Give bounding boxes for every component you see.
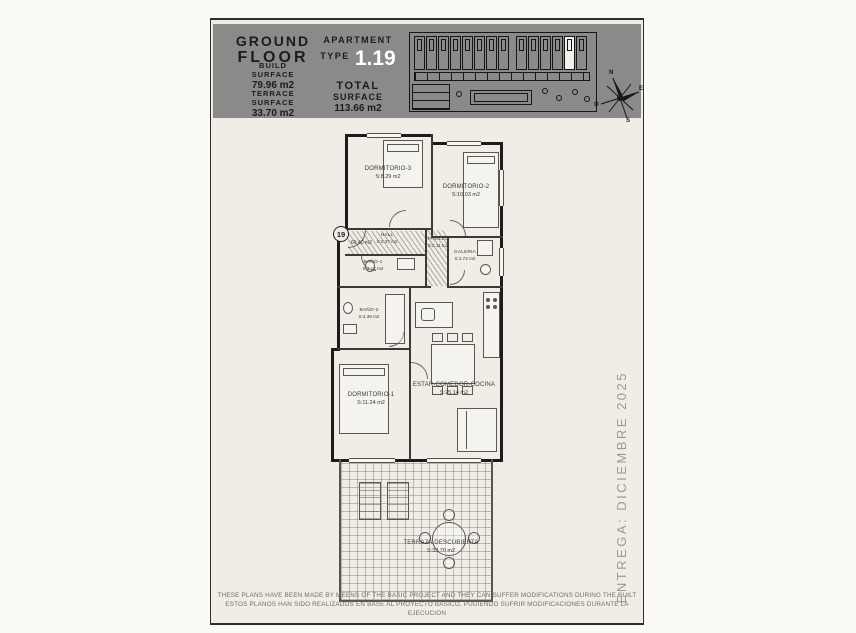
disclaimer-line-es: ESTOS PLANOS HAN SIDO REALIZADOS EN BASE… <box>211 600 643 618</box>
delivery-note: ENTREGA: DICIEMBRE 2025 <box>614 371 629 603</box>
compass-south-label: S <box>626 118 630 124</box>
stove-burner <box>493 305 497 309</box>
total-surface-value: 113.66 m2 <box>313 103 403 114</box>
window <box>447 141 481 146</box>
tree-icon <box>572 89 578 95</box>
terrace-wall <box>491 459 493 602</box>
wall-segment <box>431 134 433 238</box>
room-label-bano-1: BAÑO-1S:4.12 m2 <box>351 260 395 272</box>
dining-chair <box>462 333 473 342</box>
room-label-dormitorio-1: DORMITORIO-1S:11.24 m2 <box>339 392 403 407</box>
dining-chair <box>447 333 458 342</box>
site-plan-annex-block <box>412 84 450 110</box>
sink-bano-1 <box>397 258 415 270</box>
stove-burner <box>486 298 490 302</box>
door-dormitorio-1 <box>411 362 428 379</box>
apartment-number: 1.19 <box>355 47 396 71</box>
total-surface-label1: TOTAL <box>313 80 403 92</box>
site-plan-highlighted-unit <box>564 36 575 70</box>
terrace-surface-block: TERRACE SURFACE 33.70 m2 <box>233 90 313 119</box>
apartment-type-block: APARTMENT TYPE 1.19 <box>313 35 403 71</box>
compass-north-label: N <box>609 70 613 76</box>
door-dormitorio-3 <box>389 210 406 227</box>
tree-icon <box>456 91 462 97</box>
apartment-label: APARTMENT <box>313 35 403 45</box>
wall-segment <box>345 134 348 230</box>
wall-segment <box>337 228 340 350</box>
apartment-type-label: TYPE <box>320 51 350 61</box>
boiler-galeria <box>480 264 491 275</box>
stove-burner <box>493 298 497 302</box>
dining-table <box>431 344 475 384</box>
wall-segment <box>337 286 431 288</box>
compass-west-label: O <box>594 102 599 108</box>
total-surface-block: TOTAL SURFACE 113.66 m2 <box>313 80 403 114</box>
build-surface-block: BUILD SURFACE 79.96 m2 <box>233 62 313 91</box>
sink-bano-2 <box>343 324 357 334</box>
site-plan-units-left <box>414 36 509 70</box>
dining-chair <box>432 333 443 342</box>
site-plan-units-right <box>516 36 587 70</box>
wall-segment <box>345 254 427 256</box>
wall-segment <box>447 286 503 288</box>
room-label-bano-2: BAÑO-2S:4.38 m2 <box>345 308 393 320</box>
room-label-pasillo: PASILLOS:2.11 m2 <box>423 237 453 249</box>
room-label-dormitorio-3: DORMITORIO-3S:8.29 m2 <box>357 166 419 181</box>
compass-east-label: E <box>639 86 643 92</box>
window <box>499 248 504 276</box>
room-label-dormitorio-2: DORMITORIO-2S:10.03 m2 <box>435 184 497 199</box>
disclaimer-line-en: THESE PLANS HAVE BEEN MADE BY MEENS OF T… <box>211 591 643 600</box>
sofa <box>457 408 497 452</box>
entry-level-annotation: 69.40 m2 <box>351 240 372 246</box>
plan-sheet: GROUND FLOOR BUILD SURFACE 79.96 m2 TERR… <box>210 18 644 625</box>
kitchen-counter <box>483 292 500 358</box>
site-plan-terraces-strip <box>414 72 590 81</box>
terrace-surface-label2: SURFACE <box>233 99 313 108</box>
sun-lounger <box>387 482 409 520</box>
floor-plan: 19 69.40 m2 DORMITORIO-3S:8.29 m2 DORMIT… <box>331 130 503 604</box>
total-surface-label2: SURFACE <box>313 92 403 102</box>
wall-segment <box>337 348 411 350</box>
terrace-chair <box>443 509 455 521</box>
terrace-chair <box>443 557 455 569</box>
wall-segment <box>331 348 334 462</box>
build-surface-label2: SURFACE <box>233 71 313 80</box>
tree-icon <box>584 96 590 102</box>
floor-title-line1: GROUND <box>227 33 319 49</box>
window <box>499 170 504 206</box>
room-label-galeria: GALERIAS:1.72 m2 <box>447 250 483 262</box>
disclaimer: THESE PLANS HAVE BEEN MADE BY MEENS OF T… <box>211 591 643 618</box>
tree-icon <box>556 95 562 101</box>
unit-number-badge: 19 <box>333 226 349 242</box>
window <box>367 133 401 138</box>
terrace-surface-value: 33.70 m2 <box>233 108 313 119</box>
kitchen-island-sink <box>415 302 453 328</box>
site-plan-pool <box>470 90 532 105</box>
door-galeria <box>450 270 465 285</box>
tree-icon <box>542 88 548 94</box>
stove-burner <box>486 305 490 309</box>
sun-lounger <box>359 482 381 520</box>
header-band: GROUND FLOOR BUILD SURFACE 79.96 m2 TERR… <box>213 24 641 118</box>
room-label-terraza-descubierta: TERRAZA DESCUBIERTAS:33.70 m2 <box>391 540 491 555</box>
room-label-estar-comedor-cocina: ESTAR-COMEDOR-COCINAS:25.14 m2 <box>411 382 497 397</box>
wall-segment <box>409 288 411 350</box>
compass-rose-icon: N E S O <box>597 72 643 124</box>
site-plan-map <box>409 32 597 112</box>
